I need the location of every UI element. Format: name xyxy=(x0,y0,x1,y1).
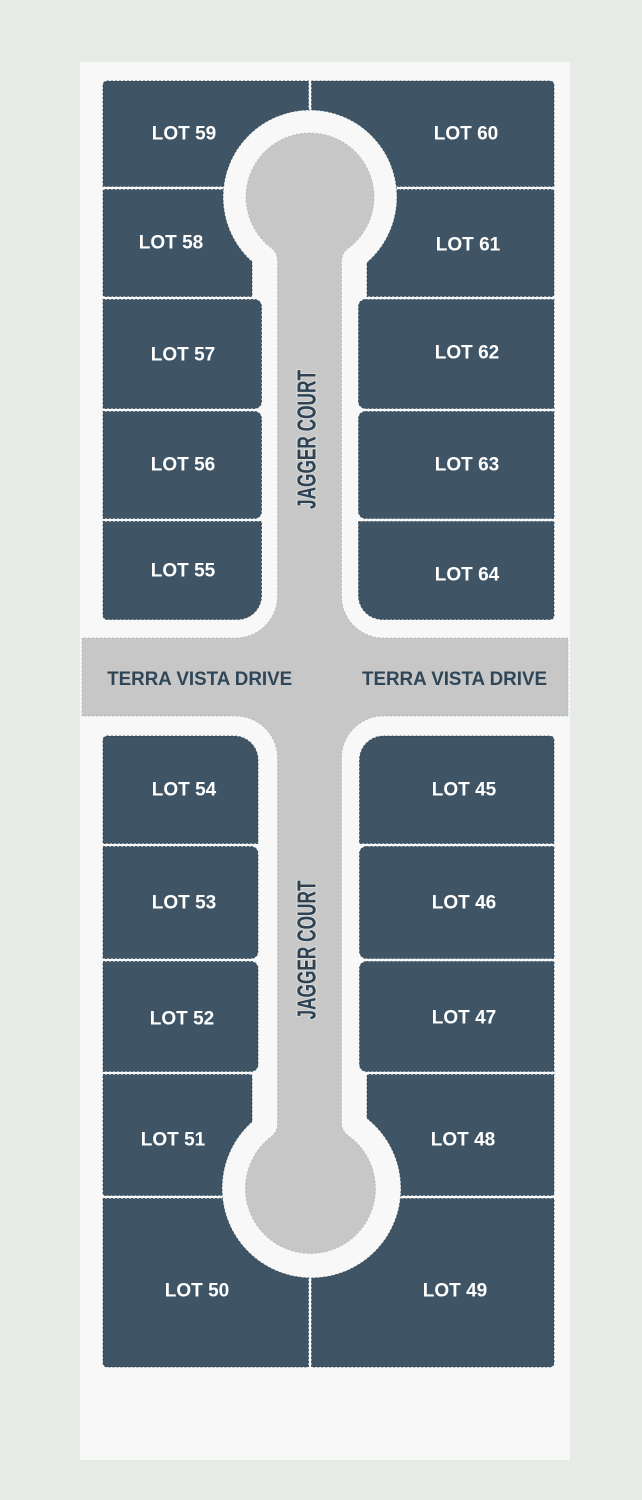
svg-text:JAGGER COURT: JAGGER COURT xyxy=(294,370,322,509)
svg-text:LOT 61: LOT 61 xyxy=(436,235,501,256)
svg-text:LOT 64: LOT 64 xyxy=(435,565,500,586)
svg-text:LOT 53: LOT 53 xyxy=(152,893,216,914)
svg-text:LOT 52: LOT 52 xyxy=(150,1009,214,1030)
svg-text:LOT 45: LOT 45 xyxy=(432,780,497,801)
svg-text:LOT 57: LOT 57 xyxy=(151,345,215,366)
svg-text:LOT 58: LOT 58 xyxy=(139,233,203,254)
svg-text:LOT 60: LOT 60 xyxy=(434,124,498,145)
svg-text:LOT 62: LOT 62 xyxy=(435,343,499,364)
svg-text:TERRA VISTA DRIVE: TERRA VISTA DRIVE xyxy=(362,668,547,690)
svg-text:LOT 59: LOT 59 xyxy=(152,124,216,145)
svg-text:LOT 63: LOT 63 xyxy=(435,455,499,476)
svg-text:LOT 51: LOT 51 xyxy=(141,1130,206,1151)
svg-text:LOT 56: LOT 56 xyxy=(151,455,215,476)
svg-text:LOT 48: LOT 48 xyxy=(431,1130,495,1151)
svg-text:LOT 55: LOT 55 xyxy=(151,561,216,582)
svg-text:TERRA VISTA DRIVE: TERRA VISTA DRIVE xyxy=(107,668,292,690)
svg-text:LOT 49: LOT 49 xyxy=(423,1281,487,1302)
svg-text:LOT 54: LOT 54 xyxy=(152,780,217,801)
svg-text:LOT 47: LOT 47 xyxy=(432,1008,496,1029)
svg-text:LOT 46: LOT 46 xyxy=(432,893,496,914)
svg-text:LOT 50: LOT 50 xyxy=(165,1281,229,1302)
svg-text:JAGGER COURT: JAGGER COURT xyxy=(294,880,322,1019)
